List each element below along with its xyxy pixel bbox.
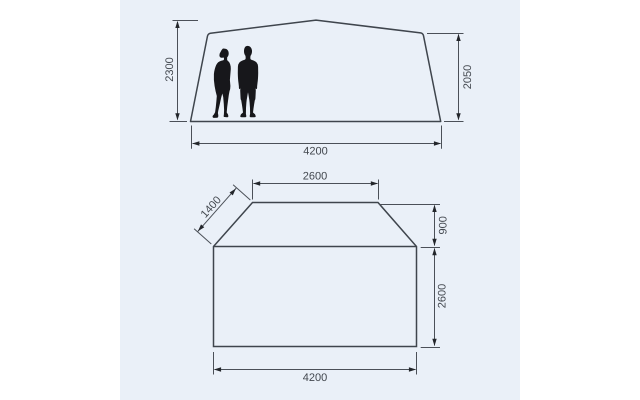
svg-text:2600: 2600 <box>436 284 448 308</box>
svg-text:2050: 2050 <box>462 65 474 89</box>
svg-text:2300: 2300 <box>164 57 176 81</box>
svg-text:2600: 2600 <box>303 170 327 182</box>
svg-text:4200: 4200 <box>303 372 327 384</box>
svg-text:900: 900 <box>438 216 450 234</box>
svg-text:4200: 4200 <box>303 146 327 158</box>
